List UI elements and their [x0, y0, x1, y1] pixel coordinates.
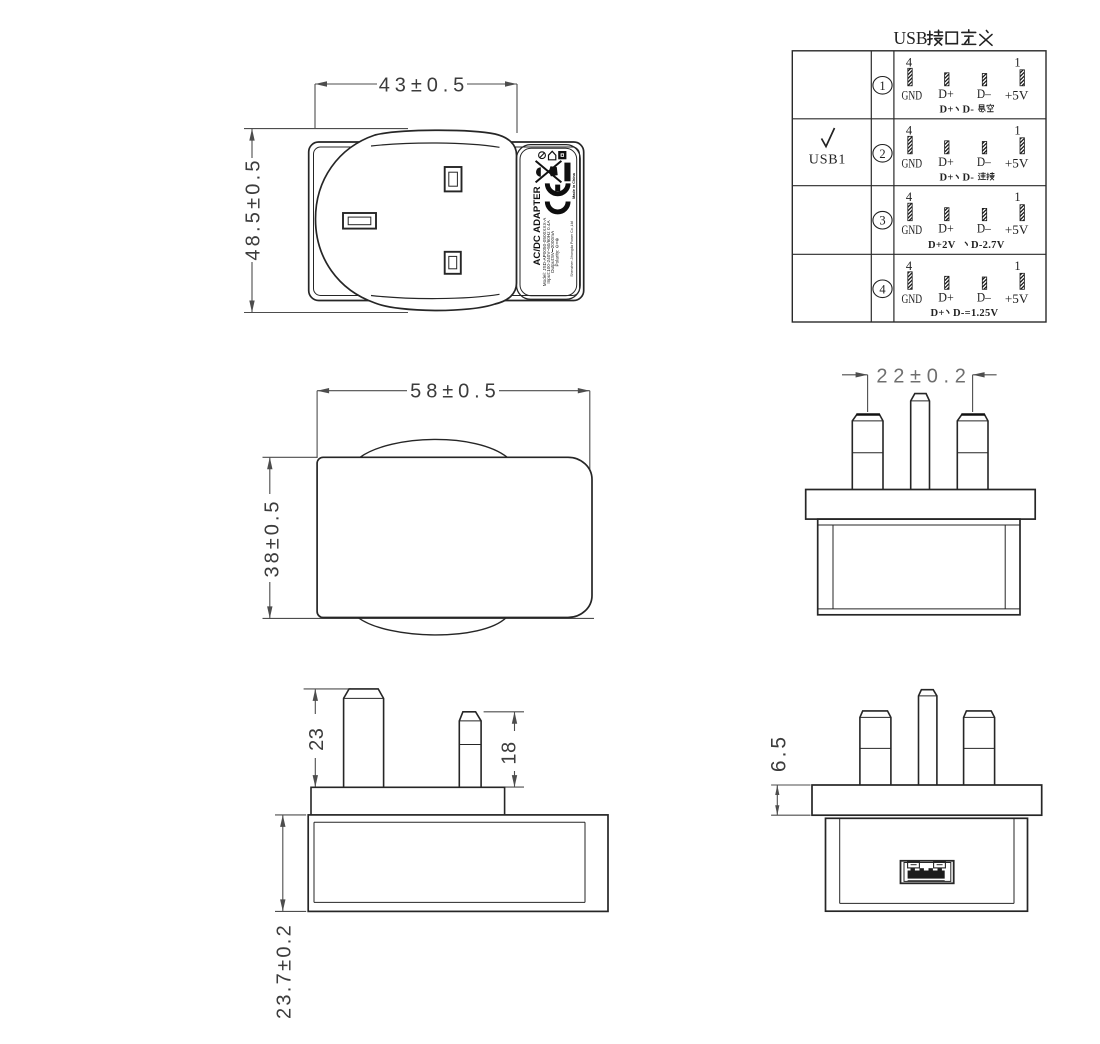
svg-text:4: 4	[906, 190, 913, 204]
svg-text:D+: D+	[938, 290, 954, 304]
svg-text:D+: D+	[940, 172, 954, 183]
svg-text:D+: D+	[931, 308, 945, 319]
svg-text:22±0.2: 22±0.2	[876, 366, 971, 388]
svg-text:1: 1	[879, 79, 885, 93]
svg-text:+5V: +5V	[1005, 292, 1029, 306]
svg-text:3: 3	[879, 214, 885, 228]
svg-text:D+2V: D+2V	[928, 240, 956, 251]
svg-text:D–: D–	[977, 222, 992, 236]
svg-text:4: 4	[906, 123, 913, 137]
svg-text:38±0.5: 38±0.5	[261, 498, 283, 577]
svg-text:USB: USB	[894, 28, 928, 48]
svg-text:+5V: +5V	[1005, 223, 1029, 237]
svg-text:1: 1	[1014, 55, 1020, 69]
svg-text:Polarity: ⊖━⊕: Polarity: ⊖━⊕	[554, 237, 559, 266]
svg-text:1: 1	[1014, 190, 1020, 204]
svg-text:D+: D+	[938, 87, 954, 101]
svg-text:D–: D–	[977, 290, 992, 304]
svg-text:2: 2	[879, 147, 885, 161]
svg-text:D–: D–	[977, 87, 992, 101]
svg-text:43±0.5: 43±0.5	[379, 75, 469, 97]
svg-text:D+: D+	[940, 104, 954, 115]
svg-text:D-2.7V: D-2.7V	[971, 240, 1005, 251]
svg-text:+5V: +5V	[1005, 156, 1029, 170]
svg-text:D–: D–	[977, 155, 992, 169]
svg-text:48.5±0.5: 48.5±0.5	[243, 157, 265, 260]
svg-text:58±0.5: 58±0.5	[410, 381, 500, 403]
svg-text:23: 23	[306, 728, 328, 751]
svg-text:4: 4	[906, 259, 913, 273]
svg-text:Made in China: Made in China	[572, 172, 576, 199]
svg-text:6.5: 6.5	[768, 734, 791, 772]
svg-text:D+: D+	[938, 222, 954, 236]
svg-text:GND: GND	[902, 223, 923, 237]
svg-text:GND: GND	[902, 88, 923, 102]
svg-text:18: 18	[499, 741, 521, 764]
svg-text:USB1: USB1	[809, 153, 846, 168]
svg-text:GND: GND	[902, 156, 923, 170]
svg-text:GND: GND	[902, 292, 923, 306]
svg-text:4: 4	[879, 282, 886, 296]
svg-text:D-=1.25V: D-=1.25V	[953, 308, 999, 319]
svg-text:23.7±0.2: 23.7±0.2	[274, 923, 296, 1019]
svg-text:Shenzhen Jihongda Power Co.,Lt: Shenzhen Jihongda Power Co.,Ltd	[570, 221, 574, 277]
svg-text:D-: D-	[963, 104, 975, 115]
svg-text:+5V: +5V	[1005, 88, 1029, 102]
svg-text:4: 4	[906, 55, 913, 69]
svg-text:1: 1	[1014, 123, 1020, 137]
svg-text:D-: D-	[963, 172, 975, 183]
svg-text:1: 1	[1014, 259, 1020, 273]
svg-text:D+: D+	[938, 155, 954, 169]
